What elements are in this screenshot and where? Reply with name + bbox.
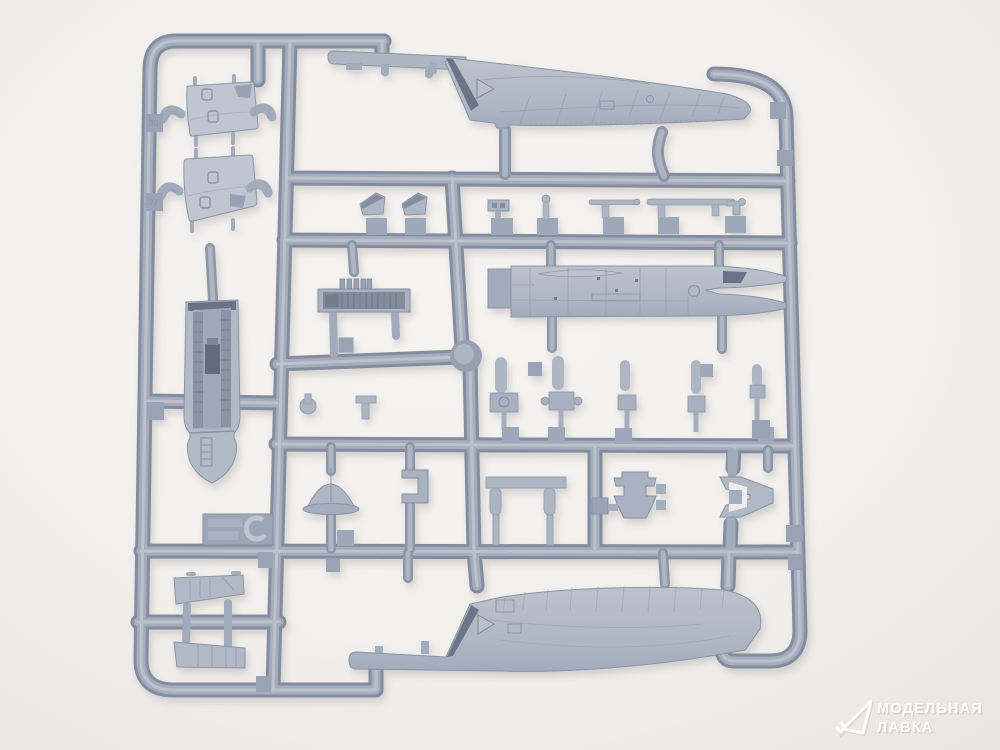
svg-text:ЛАВКА: ЛАВКА bbox=[877, 720, 933, 736]
svg-text:МОДЕЛЬНАЯ: МОДЕЛЬНАЯ bbox=[877, 701, 983, 717]
svg-text:27: 27 bbox=[149, 198, 158, 207]
svg-text:30: 30 bbox=[149, 119, 158, 128]
